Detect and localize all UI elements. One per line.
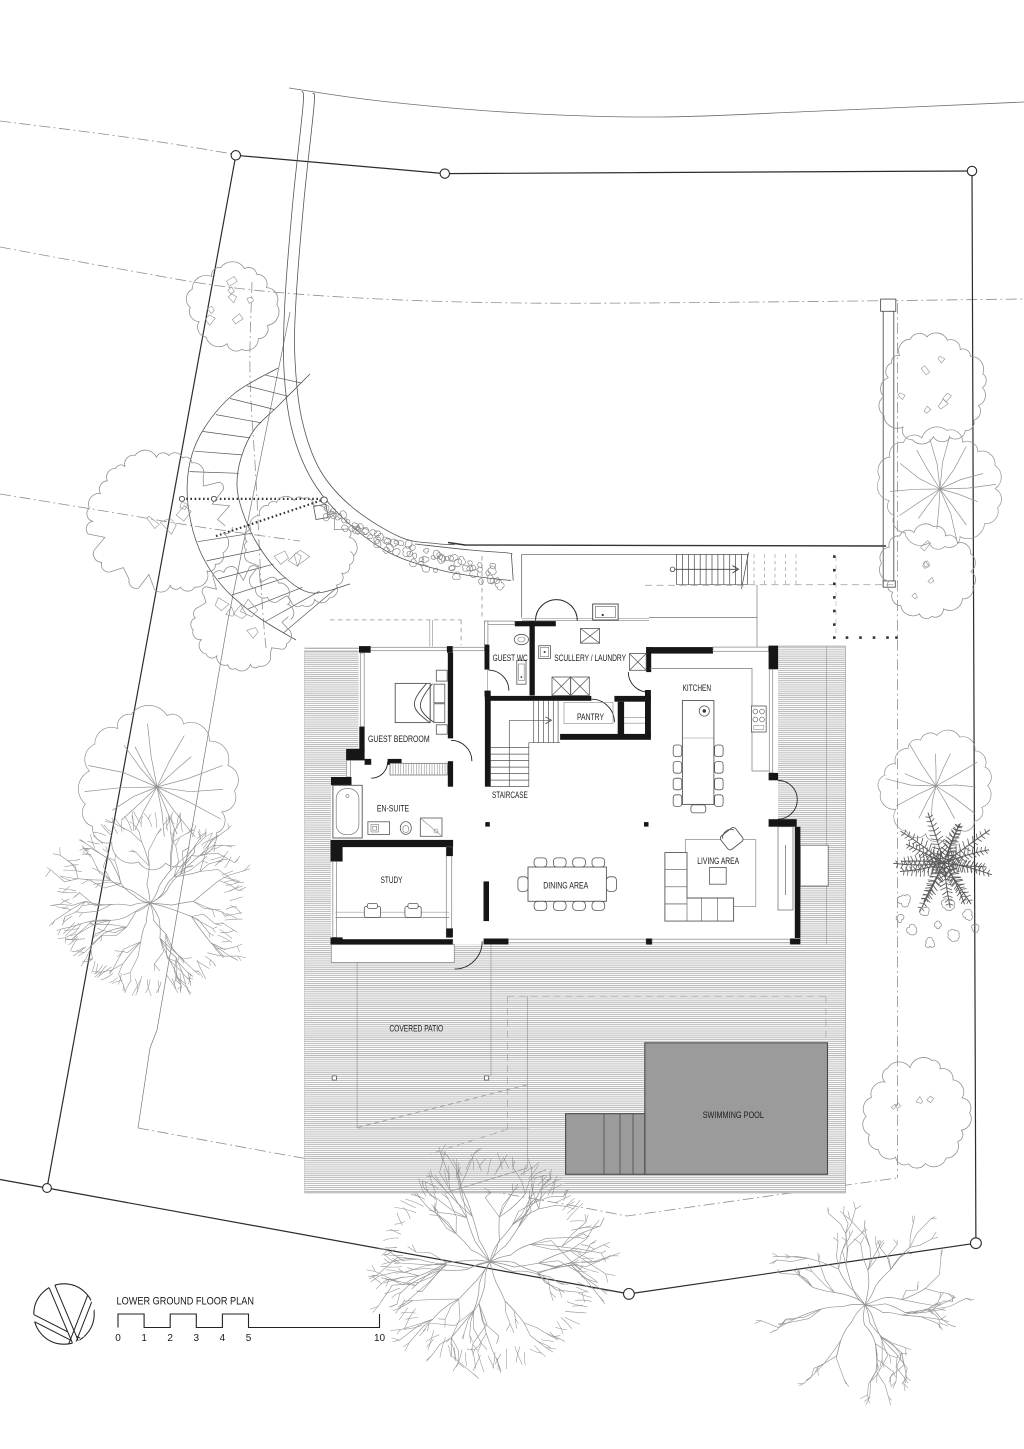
svg-text:STAIRCASE: STAIRCASE: [492, 790, 528, 800]
svg-text:LIVING AREA: LIVING AREA: [697, 856, 739, 866]
svg-text:LOWER GROUND FLOOR PLAN: LOWER GROUND FLOOR PLAN: [117, 1296, 255, 1308]
svg-text:PANTRY: PANTRY: [577, 712, 604, 722]
svg-text:GUEST BEDROOM: GUEST BEDROOM: [368, 734, 430, 744]
svg-text:DINING AREA: DINING AREA: [543, 881, 588, 891]
svg-text:EN-SUITE: EN-SUITE: [377, 804, 409, 814]
svg-text:SWIMMING POOL: SWIMMING POOL: [703, 1110, 764, 1120]
svg-text:SCULLERY / LAUNDRY: SCULLERY / LAUNDRY: [554, 653, 626, 663]
svg-text:4: 4: [220, 1333, 226, 1344]
svg-text:KITCHEN: KITCHEN: [683, 683, 711, 693]
svg-text:1: 1: [141, 1333, 147, 1344]
svg-text:2: 2: [167, 1333, 173, 1344]
svg-text:5: 5: [246, 1333, 252, 1344]
svg-text:10: 10: [374, 1333, 386, 1344]
svg-text:COVERED PATIO: COVERED PATIO: [389, 1023, 443, 1033]
svg-text:GUEST WC: GUEST WC: [493, 653, 529, 663]
svg-text:STUDY: STUDY: [381, 875, 403, 885]
svg-text:3: 3: [194, 1333, 200, 1344]
svg-text:0: 0: [115, 1333, 121, 1344]
